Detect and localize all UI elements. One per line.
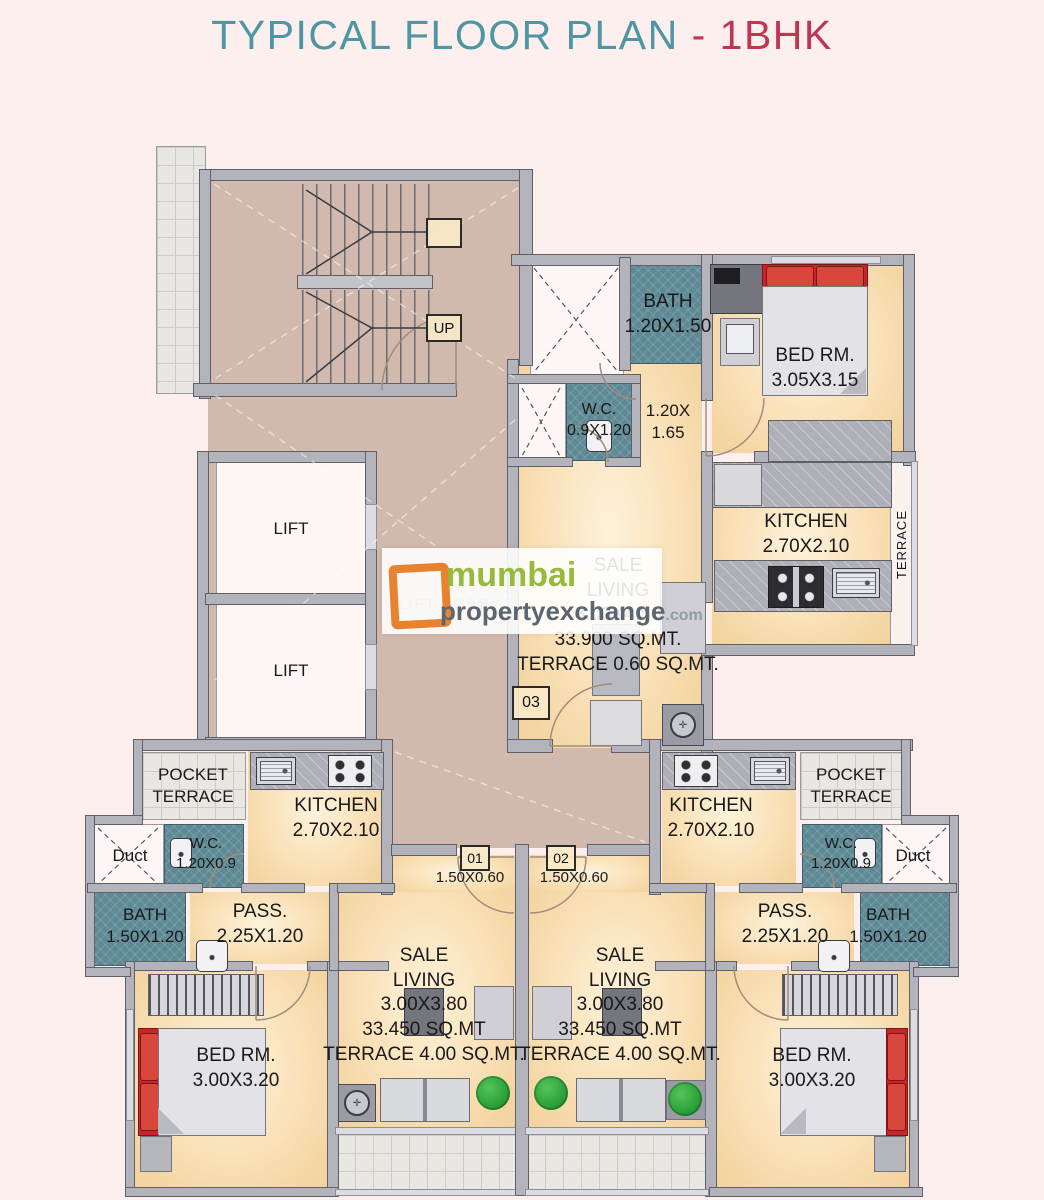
wall [508,375,640,383]
title-accent: - 1BHK [692,12,833,58]
wall [126,1188,338,1196]
wall [86,816,142,824]
unit3-duct [530,263,624,377]
unit3-terrace-rail [912,462,917,645]
unit2-terrace-door-track [526,1128,708,1134]
wall [710,1188,922,1196]
wall [366,452,376,748]
unit3-number: 03 [512,686,550,720]
unit2-duct-label: Duct [896,845,931,867]
unit1-living-label: SALE LIVING 3.00X3.80 33.450 SQ.MT TERRA… [323,944,525,1067]
nightstand [874,1136,906,1172]
wall [588,845,650,855]
wall [740,884,802,892]
pillow [140,1033,159,1081]
chair [590,700,642,746]
wall [134,740,142,824]
unit3-wc-duct [518,383,566,461]
tv-screen [726,324,754,354]
unit3-passage-dim: 1.20X1.65 [646,400,690,444]
wall [200,170,210,398]
wall [650,740,660,894]
wall [904,255,914,465]
watermark-brand: mumbai [446,556,576,595]
plant-icon [534,1076,568,1110]
wardrobe [148,974,264,1016]
wall [606,458,640,466]
bed-fold [780,1108,806,1134]
wall [792,962,914,970]
title-main: TYPICAL FLOOR PLAN [211,12,691,58]
wall [208,170,532,180]
fridge [714,464,762,506]
stair-marker-box [426,218,462,248]
stove-icon [768,566,824,608]
unit2-terrace-rail [526,1190,708,1195]
unit2-pocket-terrace-label: POCKETTERRACE [810,764,891,808]
unit2-wc-label: W.C.1.20X0.9 [811,834,871,873]
page-title: TYPICAL FLOOR PLAN - 1BHK [0,12,1044,59]
wall [392,845,456,855]
stair-landing [298,276,432,288]
pillow [140,1083,159,1131]
unit2-terrace-floor [526,1134,710,1192]
wall [338,884,394,892]
wall [86,816,94,976]
unit2-bedroom-label: BED RM.3.00X3.20 [769,1044,856,1093]
nightstand [140,1136,172,1172]
corridor-floor [392,748,650,848]
stair-up-label: UP [426,314,462,342]
wall [206,452,376,462]
unit2-bedroom-window [911,1010,917,1120]
sofa [380,1078,470,1122]
unit1-bedroom-label: BED RM.3.00X3.20 [193,1044,280,1093]
unit1-pass-label: PASS.2.25X1.20 [217,900,304,949]
sink-icon [256,757,296,785]
pillow [816,266,864,287]
wall [86,968,130,976]
pillow [766,266,814,287]
stove-icon [328,755,372,787]
plant-icon [668,1082,702,1116]
unit2-living-label: SALE LIVING 3.00X3.80 33.450 SQ.MT TERRA… [519,944,721,1067]
unit2-entry-dim: 1.50X0.60 [540,868,608,888]
wall [508,458,572,466]
side-balcony-tile [156,146,206,394]
unit3-terrace-label: TERRACE [894,510,909,579]
watermark: mumbai propertyexchange.com [382,548,662,634]
watermark-tld: .com [665,607,702,624]
wall [242,884,304,892]
wall [88,884,202,892]
pillow [887,1083,906,1131]
wardrobe [782,974,898,1016]
wall [702,645,914,655]
sink-icon [832,568,880,598]
unit3-bath-label: BATH1.20X1.50 [625,290,712,339]
pillow [887,1033,906,1081]
washing-machine-icon: ✛ [338,1084,376,1122]
unit1-terrace-rail [336,1190,518,1195]
unit3-wc-label: W.C.0.9X1.20 [567,400,631,442]
wall [950,816,958,976]
wall [902,740,910,824]
tv-icon [714,268,740,284]
wall [206,594,376,604]
lift-1-door [366,505,376,549]
wall [632,383,640,465]
unit1-bath-label: BATH1.50X1.20 [106,904,184,948]
unit1-entry-dim: 1.50X0.60 [436,868,504,888]
wall [508,740,552,752]
lift-2-door [366,645,376,689]
wall [134,740,392,750]
unit2-bath-label: BATH1.50X1.20 [849,904,927,948]
unit3-kitchen-label: KITCHEN2.70X2.10 [763,510,850,559]
stair-treads-lower [302,290,432,384]
unit3-bedroom-window [772,257,880,263]
stove-icon [674,755,718,787]
wall [130,962,252,970]
wall [914,968,958,976]
sofa [576,1078,666,1122]
plant-icon [476,1076,510,1110]
wall [520,170,532,365]
floor-plan: TYPICAL FLOOR PLAN - 1BHK [0,0,1044,1200]
unit2-pass-label: PASS.2.25X1.20 [742,900,829,949]
unit2-kitchen-label: KITCHEN2.70X2.10 [668,794,755,843]
unit1-terrace-door-track [336,1128,518,1134]
wall [194,384,456,396]
unit1-duct-label: Duct [113,845,148,867]
unit1-pocket-terrace-label: POCKETTERRACE [152,764,233,808]
unit1-terrace-floor [336,1134,520,1192]
unit1-wc-label: W.C.1.20X0.9 [176,834,236,873]
watermark-domain: propertyexchange.com [440,596,703,627]
washing-machine-icon: ✛ [662,704,704,746]
wardrobe [768,420,892,462]
unit1-bedroom-window [127,1010,133,1120]
wall [650,884,706,892]
lift-1-label: LIFT [274,518,309,540]
sink-icon [750,757,790,785]
unit1-kitchen-label: KITCHEN2.70X2.10 [293,794,380,843]
lift-2-label: LIFT [274,660,309,682]
unit3-bedroom-label: BED RM.3.05X3.15 [772,344,859,393]
stair-treads-upper [302,184,432,276]
wall [842,884,956,892]
bed-fold [158,1108,184,1134]
